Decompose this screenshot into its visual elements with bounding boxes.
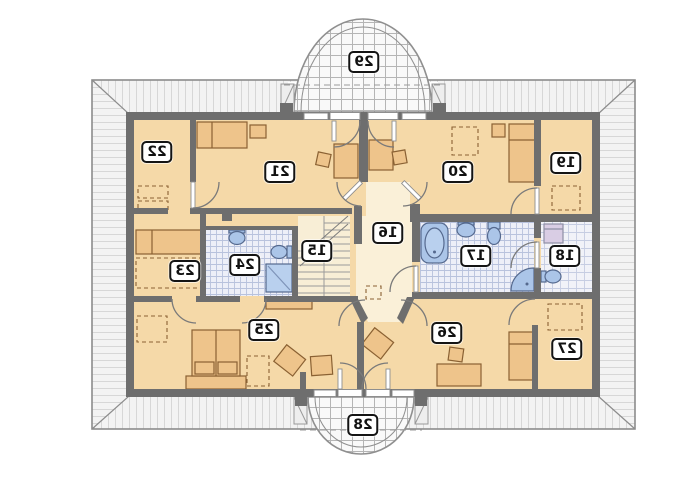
chair-room21 [316, 152, 331, 167]
door-leaf [332, 121, 336, 141]
toilet-icon-bath17 [488, 222, 501, 245]
chair-room20 [392, 150, 407, 165]
floor-plan-page: 151617181920212223242526272829 [0, 0, 700, 482]
balcony-door-opening [368, 113, 398, 120]
floor-plan-drawing [0, 0, 700, 482]
shower-icon-bath24 [266, 264, 292, 292]
desk-room21 [334, 144, 358, 178]
toilet-icon-bath18 [541, 270, 561, 283]
door-leaf [535, 242, 539, 268]
sink-icon-bath17 [457, 222, 475, 237]
sink-icon-bath24 [229, 230, 245, 245]
nightstand-room21 [250, 125, 266, 138]
double-bed-room25 [186, 330, 246, 389]
chimney [222, 212, 232, 221]
bathtub-icon [421, 223, 448, 263]
balcony-bottom [294, 397, 428, 454]
door-leaf [386, 369, 390, 389]
door-leaf [535, 188, 539, 214]
window [304, 113, 328, 120]
bed-room27 [509, 332, 534, 380]
bed-room23 [136, 230, 204, 254]
door-leaf [191, 182, 195, 208]
window [392, 390, 414, 397]
window [314, 390, 336, 397]
balcony-door-opening [366, 390, 390, 397]
balcony-door-opening [330, 113, 360, 120]
balcony-top [280, 19, 446, 114]
door-leaf [414, 266, 418, 292]
chair-room26 [448, 347, 464, 362]
washing-machine-icon [544, 224, 563, 243]
bed-room21 [197, 122, 247, 148]
toilet-icon-bath24 [271, 246, 292, 259]
window [402, 113, 426, 120]
door-leaf [392, 121, 396, 141]
nightstand-room20 [492, 124, 505, 137]
balcony-door-opening [338, 390, 362, 397]
desk-room20 [369, 140, 393, 170]
armchair-room25-2 [310, 355, 332, 375]
door-leaf [338, 369, 342, 389]
desk-room26 [437, 364, 481, 386]
bed-room20 [509, 124, 536, 182]
